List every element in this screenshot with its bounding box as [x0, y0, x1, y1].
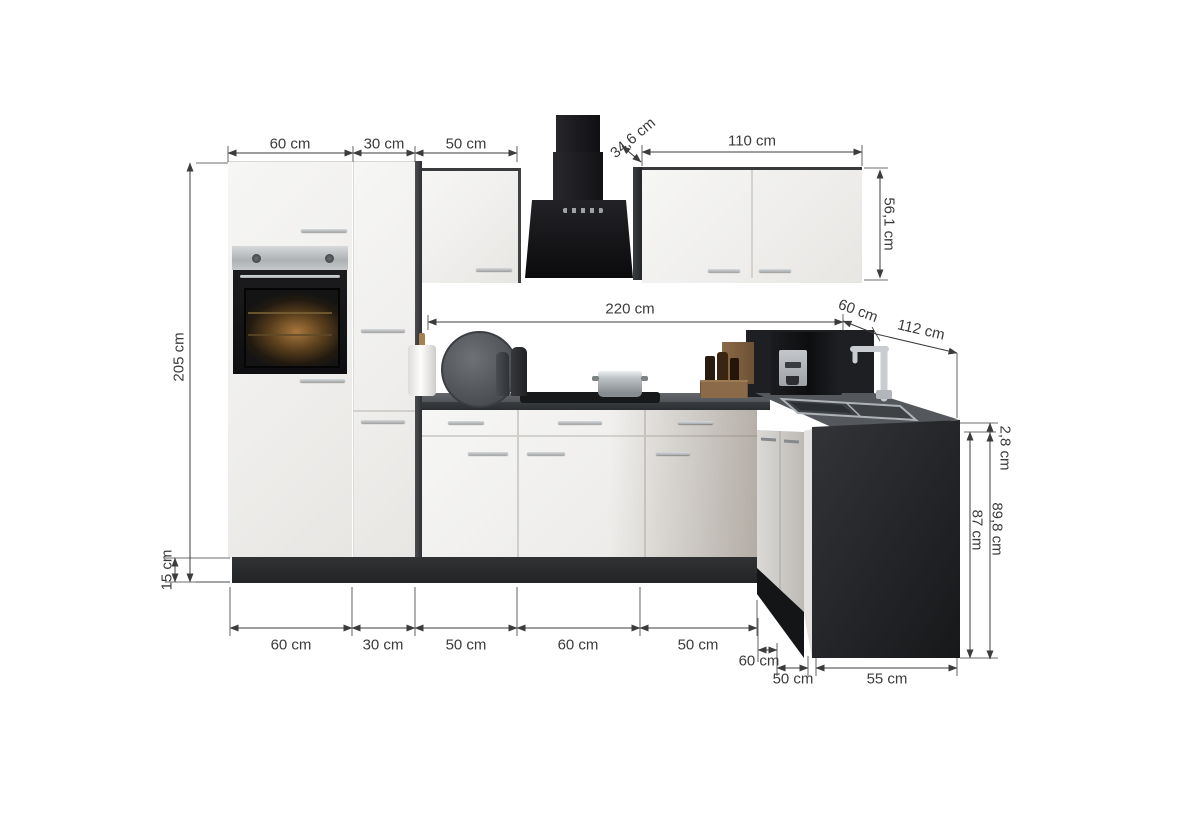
coffee-cup — [786, 376, 799, 385]
pot-handle-left — [592, 376, 599, 381]
dim-top-tall-cabinet-width: 30 cm — [364, 136, 405, 153]
dim-worktop-height-total: 89,8 cm — [989, 502, 1006, 555]
oven-rack-line-2 — [248, 334, 332, 336]
dim-plinth-height: 15 cm — [159, 550, 176, 591]
hood-buttons — [563, 208, 603, 213]
tall-cabinet-30 — [353, 161, 416, 558]
oven-cabinet-lower-door-handle — [300, 379, 345, 382]
base-50-drawer-handle — [448, 421, 484, 424]
wall-cabinet-110-right-handle — [759, 269, 791, 272]
spice-grinder-large — [511, 347, 527, 396]
corner-shadow-overlay — [610, 410, 757, 557]
wall-cabinet-50 — [422, 168, 521, 283]
oven-cabinet-upper-door-handle — [301, 229, 347, 232]
hood-chimney-upper — [556, 115, 600, 153]
bottle-1 — [705, 356, 715, 382]
dim-bottom-seg-5: 50 cm — [678, 637, 719, 654]
dim-top-wall-cabinet-width: 50 cm — [446, 136, 487, 153]
base-unit-separator-1 — [517, 410, 519, 557]
base-50-door-handle — [468, 452, 508, 455]
tall-cabinet-30-lower-handle — [361, 420, 405, 423]
wall-cabinet-110-left-handle — [708, 269, 740, 272]
dim-bottom-seg-3: 50 cm — [446, 637, 487, 654]
right-run-cabinet — [757, 420, 960, 658]
plinth — [232, 557, 757, 583]
dim-tall-unit-height: 205 cm — [171, 332, 188, 381]
oven-window — [244, 288, 340, 368]
faucet — [853, 349, 892, 399]
dim-bottom-seg-4: 60 cm — [558, 637, 599, 654]
wall-cabinet-110-door-split — [751, 170, 753, 278]
spice-grinder-small — [496, 352, 509, 396]
base-60-door-handle — [527, 452, 565, 455]
cooking-pot — [598, 371, 642, 397]
dim-corner-unit-width: 60 cm — [836, 296, 880, 326]
coffee-machine-spout — [785, 362, 801, 368]
pot-handle-right — [641, 376, 648, 381]
dim-bottom-seg-2: 30 cm — [363, 637, 404, 654]
oven-knob-left — [252, 254, 261, 263]
base-corner50-drawer-handle — [678, 421, 713, 424]
dim-bottom-seg-1: 60 cm — [271, 637, 312, 654]
dim-base-unit-height: 87 cm — [969, 510, 986, 551]
base-60-drawer-handle — [558, 421, 602, 424]
dim-wall-cabinet-height: 56,1 cm — [881, 197, 898, 250]
dim-right-seg-2: 55 cm — [867, 671, 908, 688]
dim-top-oven-housing-width: 60 cm — [270, 136, 311, 153]
wall-cabinet-110-side — [633, 167, 642, 280]
sink — [782, 399, 916, 420]
bottle-3 — [730, 358, 739, 382]
oven-rack-line — [248, 312, 332, 314]
dim-double-wall-cabinet-width: 110 cm — [728, 133, 776, 150]
dim-right-seg-1: 50 cm — [773, 671, 814, 688]
tall-cabinet-30-door-split — [353, 410, 415, 412]
tall-cabinet-30-upper-handle — [361, 329, 405, 332]
oven-door-handle — [240, 275, 340, 278]
kitchen-dimension-diagram: 60 cm 30 cm 50 cm 34,6 cm 110 cm 56,1 cm… — [0, 0, 1200, 818]
wall-cabinet-50-handle — [476, 268, 512, 271]
hood-chimney-lower — [553, 152, 603, 202]
dim-worktop-thickness: 2,8 cm — [997, 425, 1014, 470]
wooden-crate — [700, 380, 748, 398]
dim-wall-cabinet-depth: 34,6 cm — [607, 114, 659, 161]
paper-towel-roll — [408, 345, 436, 396]
base-corner50-door-handle — [656, 452, 690, 455]
dim-worktop-run: 220 cm — [605, 301, 654, 318]
dim-corner-depth: 60 cm — [739, 653, 780, 670]
corner-base-doors — [757, 430, 804, 612]
bottle-2 — [717, 352, 728, 382]
dim-right-run-length: 112 cm — [896, 316, 947, 343]
oven-knob-right — [325, 254, 334, 263]
corner-worktop — [755, 393, 960, 441]
